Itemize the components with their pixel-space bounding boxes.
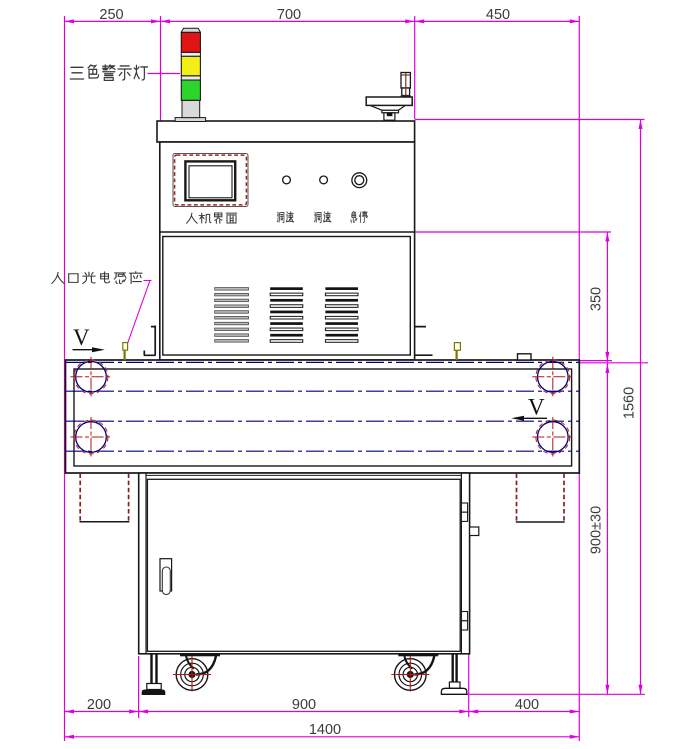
svg-text:450: 450 [486, 7, 510, 23]
svg-text:250: 250 [99, 7, 123, 23]
svg-text:350: 350 [589, 287, 605, 311]
svg-text:200: 200 [87, 697, 111, 713]
svg-text:400: 400 [515, 697, 539, 713]
svg-text:900±30: 900±30 [589, 506, 605, 554]
svg-text:V: V [73, 325, 90, 350]
svg-text:700: 700 [277, 7, 301, 23]
svg-text:1560: 1560 [622, 387, 638, 419]
svg-text:900: 900 [292, 697, 316, 713]
svg-text:V: V [528, 395, 545, 420]
svg-text:1400: 1400 [309, 722, 341, 738]
